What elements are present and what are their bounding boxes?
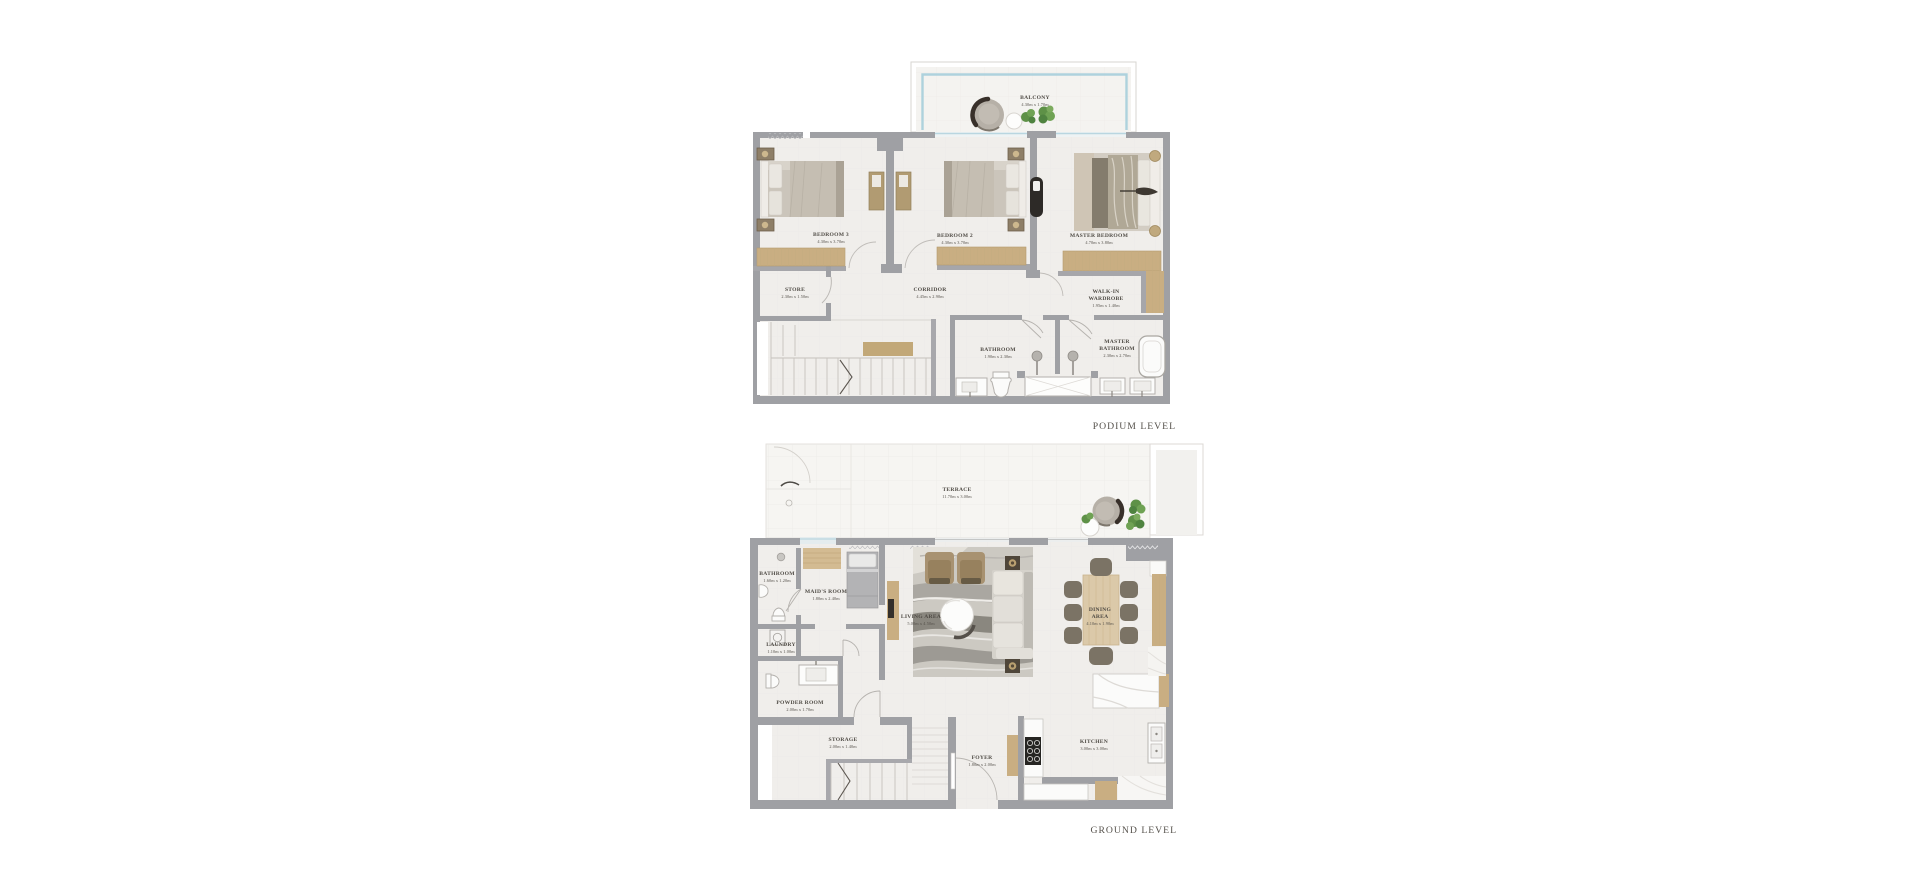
svg-text:2.00m x 1.40m: 2.00m x 1.40m: [829, 744, 857, 749]
svg-text:CORRIDOR: CORRIDOR: [913, 287, 947, 293]
svg-text:1.95m x 1.40m: 1.95m x 1.40m: [1092, 303, 1120, 308]
svg-text:BEDROOM 3: BEDROOM 3: [813, 232, 849, 238]
svg-text:1.10m x 1.00m: 1.10m x 1.00m: [767, 649, 795, 654]
svg-text:WALK-IN: WALK-IN: [1093, 289, 1120, 295]
svg-text:WARDROBE: WARDROBE: [1089, 296, 1124, 302]
svg-text:BATHROOM: BATHROOM: [1099, 346, 1135, 352]
svg-text:PODIUM LEVEL: PODIUM LEVEL: [1093, 421, 1176, 432]
svg-text:BEDROOM 2: BEDROOM 2: [937, 233, 973, 239]
svg-text:MASTER: MASTER: [1104, 339, 1130, 345]
svg-text:LIVING AREA: LIVING AREA: [901, 614, 941, 620]
svg-text:STORAGE: STORAGE: [828, 737, 857, 743]
svg-text:1.60m x 1.20m: 1.60m x 1.20m: [763, 578, 791, 583]
svg-text:BALCONY: BALCONY: [1020, 95, 1050, 101]
svg-text:3.00m x 3.00m: 3.00m x 3.00m: [1080, 746, 1108, 751]
svg-text:BATHROOM: BATHROOM: [980, 347, 1016, 353]
svg-text:STORE: STORE: [785, 287, 805, 293]
svg-text:POWDER ROOM: POWDER ROOM: [776, 700, 824, 706]
svg-text:4.30m x 3.70m: 4.30m x 3.70m: [941, 240, 969, 245]
svg-text:KITCHEN: KITCHEN: [1080, 739, 1108, 745]
svg-text:GROUND LEVEL: GROUND LEVEL: [1090, 825, 1177, 836]
svg-text:2.30m x 2.70m: 2.30m x 2.70m: [1103, 353, 1131, 358]
svg-text:4.45m x 2.90m: 4.45m x 2.90m: [916, 294, 944, 299]
svg-text:1.90m x 2.30m: 1.90m x 2.30m: [984, 354, 1012, 359]
svg-text:4.10m x 1.90m: 4.10m x 1.90m: [1086, 621, 1114, 626]
svg-text:4.30m x 1.70m: 4.30m x 1.70m: [1021, 102, 1049, 107]
svg-text:1.80m x 2.00m: 1.80m x 2.00m: [968, 762, 996, 767]
svg-text:BATHROOM: BATHROOM: [759, 571, 795, 577]
svg-text:5.00m x 4.50m: 5.00m x 4.50m: [907, 621, 935, 626]
svg-text:2.30m x 1.50m: 2.30m x 1.50m: [781, 294, 809, 299]
svg-text:AREA: AREA: [1092, 614, 1109, 620]
svg-text:MASTER BEDROOM: MASTER BEDROOM: [1070, 233, 1129, 239]
svg-text:11.70m x 3.00m: 11.70m x 3.00m: [942, 494, 972, 499]
svg-text:2.00m x 1.70m: 2.00m x 1.70m: [786, 707, 814, 712]
svg-text:TERRACE: TERRACE: [942, 487, 971, 493]
svg-text:DINING: DINING: [1089, 607, 1112, 613]
svg-text:MAID'S ROOM: MAID'S ROOM: [805, 589, 848, 595]
svg-text:FOYER: FOYER: [972, 755, 994, 761]
svg-text:1.80m x 2.40m: 1.80m x 2.40m: [812, 596, 840, 601]
svg-text:4.30m x 3.70m: 4.30m x 3.70m: [817, 239, 845, 244]
svg-text:4.70m x 3.80m: 4.70m x 3.80m: [1085, 240, 1113, 245]
svg-text:LAUNDRY: LAUNDRY: [766, 642, 796, 648]
